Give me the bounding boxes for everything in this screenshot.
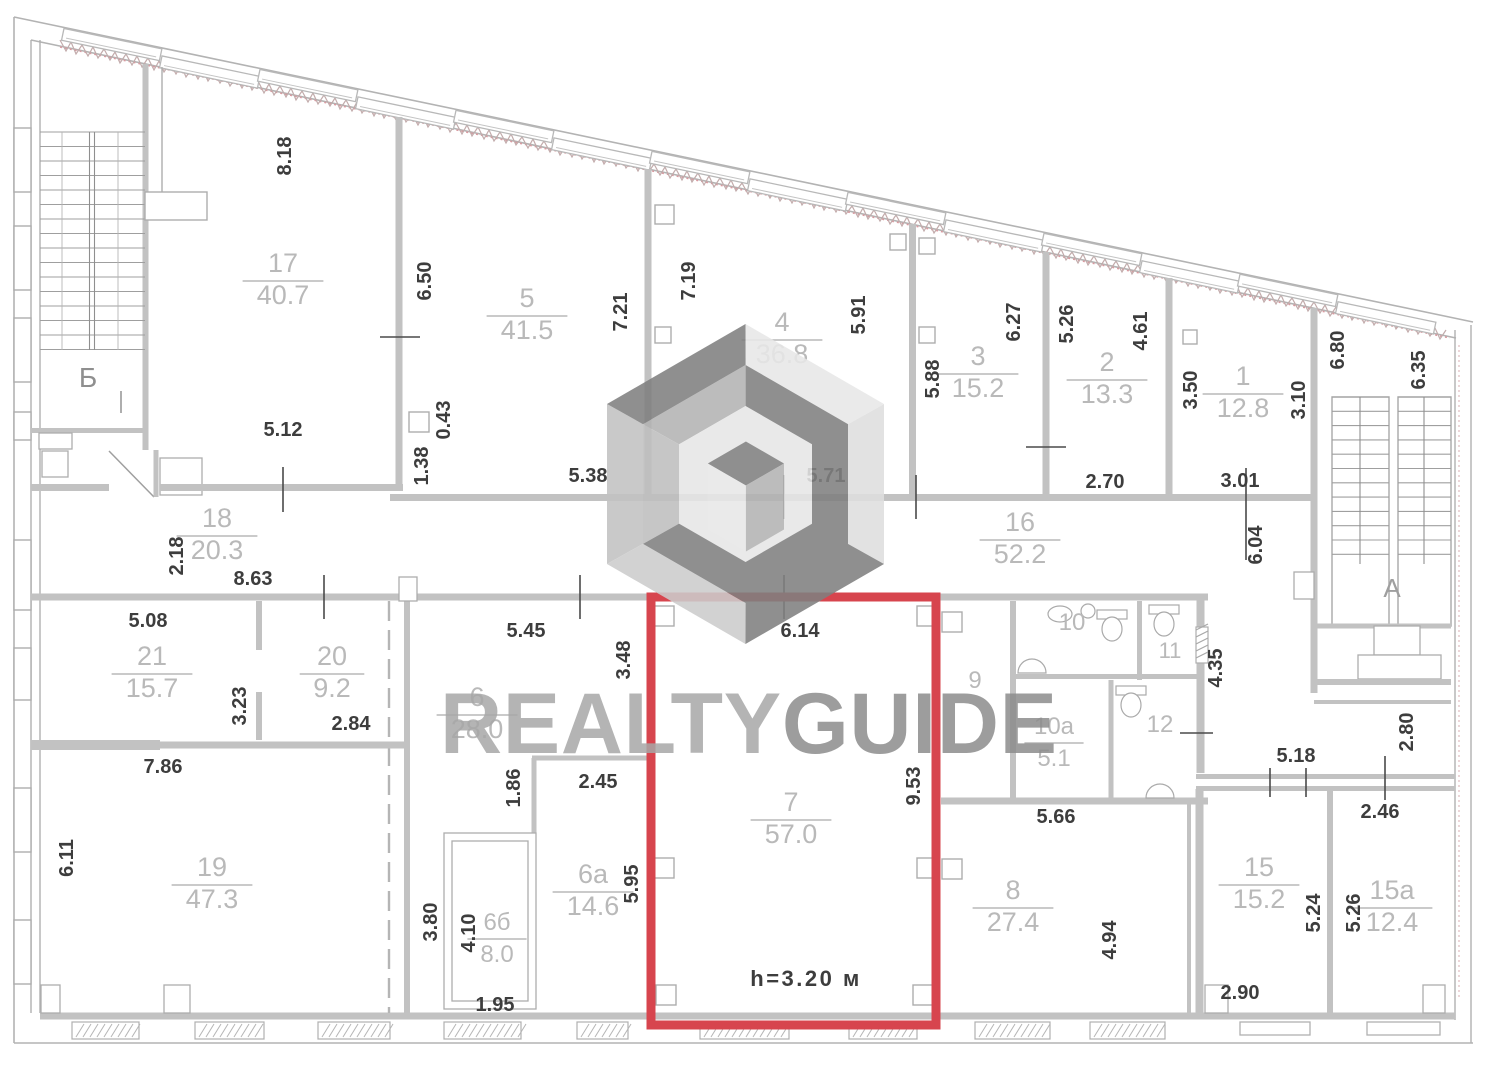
svg-text:4.61: 4.61	[1130, 312, 1152, 351]
svg-text:14.6: 14.6	[567, 891, 620, 921]
svg-text:8: 8	[1005, 875, 1020, 905]
svg-text:REALTYGUIDE: REALTYGUIDE	[440, 676, 1058, 772]
svg-text:20: 20	[317, 641, 347, 671]
svg-text:1: 1	[1235, 361, 1250, 391]
svg-text:9.53: 9.53	[903, 767, 925, 806]
svg-text:5.45: 5.45	[507, 620, 546, 642]
svg-text:6.14: 6.14	[781, 620, 821, 642]
svg-text:3.23: 3.23	[229, 687, 251, 726]
svg-text:2.18: 2.18	[166, 537, 188, 576]
svg-text:47.3: 47.3	[186, 884, 239, 914]
svg-text:5.12: 5.12	[264, 419, 303, 441]
svg-text:18: 18	[202, 503, 232, 533]
svg-text:5.26: 5.26	[1056, 305, 1078, 344]
svg-text:6.27: 6.27	[1003, 303, 1025, 342]
svg-text:57.0: 57.0	[765, 819, 818, 849]
svg-text:2.80: 2.80	[1396, 713, 1418, 752]
svg-text:5.24: 5.24	[1303, 893, 1325, 933]
svg-text:5.88: 5.88	[922, 360, 944, 399]
svg-text:15.2: 15.2	[952, 373, 1005, 403]
svg-text:3.50: 3.50	[1180, 371, 1202, 410]
svg-text:15: 15	[1244, 852, 1274, 882]
svg-text:4.10: 4.10	[458, 914, 480, 953]
svg-text:40.7: 40.7	[257, 280, 310, 310]
svg-text:6.04: 6.04	[1245, 525, 1267, 565]
svg-text:5.66: 5.66	[1037, 806, 1076, 828]
svg-text:52.2: 52.2	[994, 539, 1047, 569]
svg-text:1.38: 1.38	[411, 447, 433, 486]
svg-text:16: 16	[1005, 507, 1035, 537]
svg-text:17: 17	[268, 248, 298, 278]
svg-text:4.94: 4.94	[1099, 920, 1121, 960]
svg-text:6.11: 6.11	[56, 839, 78, 877]
svg-text:21: 21	[137, 641, 167, 671]
svg-text:2.84: 2.84	[332, 713, 372, 735]
svg-text:8.18: 8.18	[274, 137, 296, 176]
svg-text:5.95: 5.95	[621, 865, 643, 904]
svg-text:2.46: 2.46	[1361, 801, 1400, 823]
svg-text:5.08: 5.08	[129, 610, 168, 632]
svg-text:27.4: 27.4	[987, 907, 1040, 937]
svg-text:3.48: 3.48	[613, 641, 635, 680]
svg-text:3.01: 3.01	[1221, 470, 1260, 492]
svg-text:7.19: 7.19	[678, 262, 700, 301]
svg-text:7: 7	[783, 787, 798, 817]
svg-text:А: А	[1383, 573, 1401, 603]
svg-text:4.35: 4.35	[1205, 649, 1227, 688]
svg-text:8.63: 8.63	[234, 568, 273, 590]
svg-text:15.2: 15.2	[1233, 884, 1286, 914]
svg-text:12.8: 12.8	[1217, 393, 1270, 423]
svg-text:5.91: 5.91	[848, 296, 870, 335]
svg-text:5.18: 5.18	[1277, 745, 1316, 767]
svg-text:7.86: 7.86	[144, 756, 183, 778]
svg-text:20.3: 20.3	[191, 535, 244, 565]
svg-text:6.50: 6.50	[414, 262, 436, 301]
svg-text:13.3: 13.3	[1081, 379, 1134, 409]
svg-text:8.0: 8.0	[480, 941, 513, 968]
svg-text:1.95: 1.95	[476, 994, 515, 1016]
svg-text:6б: 6б	[483, 909, 510, 936]
svg-text:2: 2	[1099, 347, 1114, 377]
svg-text:12: 12	[1147, 711, 1174, 738]
svg-text:7.21: 7.21	[610, 293, 632, 332]
svg-text:9.2: 9.2	[313, 673, 351, 703]
svg-text:10: 10	[1059, 609, 1086, 636]
svg-text:5.38: 5.38	[569, 465, 608, 487]
svg-text:5: 5	[519, 283, 534, 313]
svg-text:15а: 15а	[1369, 875, 1415, 905]
svg-text:1.86: 1.86	[503, 769, 525, 808]
svg-text:12.4: 12.4	[1366, 907, 1419, 937]
svg-text:5.26: 5.26	[1343, 894, 1365, 933]
svg-text:2.90: 2.90	[1221, 982, 1260, 1004]
svg-text:4: 4	[774, 307, 789, 337]
svg-text:19: 19	[197, 852, 227, 882]
svg-text:41.5: 41.5	[501, 315, 554, 345]
svg-text:6а: 6а	[578, 859, 609, 889]
svg-text:2.45: 2.45	[579, 771, 618, 793]
svg-text:11: 11	[1159, 638, 1182, 663]
svg-text:3.80: 3.80	[420, 903, 442, 942]
svg-text:2.70: 2.70	[1086, 471, 1125, 493]
svg-text:h=3.20 м: h=3.20 м	[750, 966, 862, 991]
svg-text:3.10: 3.10	[1288, 381, 1310, 420]
svg-text:Б: Б	[79, 362, 97, 393]
svg-text:6.80: 6.80	[1327, 331, 1349, 370]
svg-text:3: 3	[970, 341, 985, 371]
svg-text:0.43: 0.43	[433, 401, 455, 440]
svg-text:6.35: 6.35	[1408, 351, 1430, 390]
svg-text:15.7: 15.7	[126, 673, 179, 703]
